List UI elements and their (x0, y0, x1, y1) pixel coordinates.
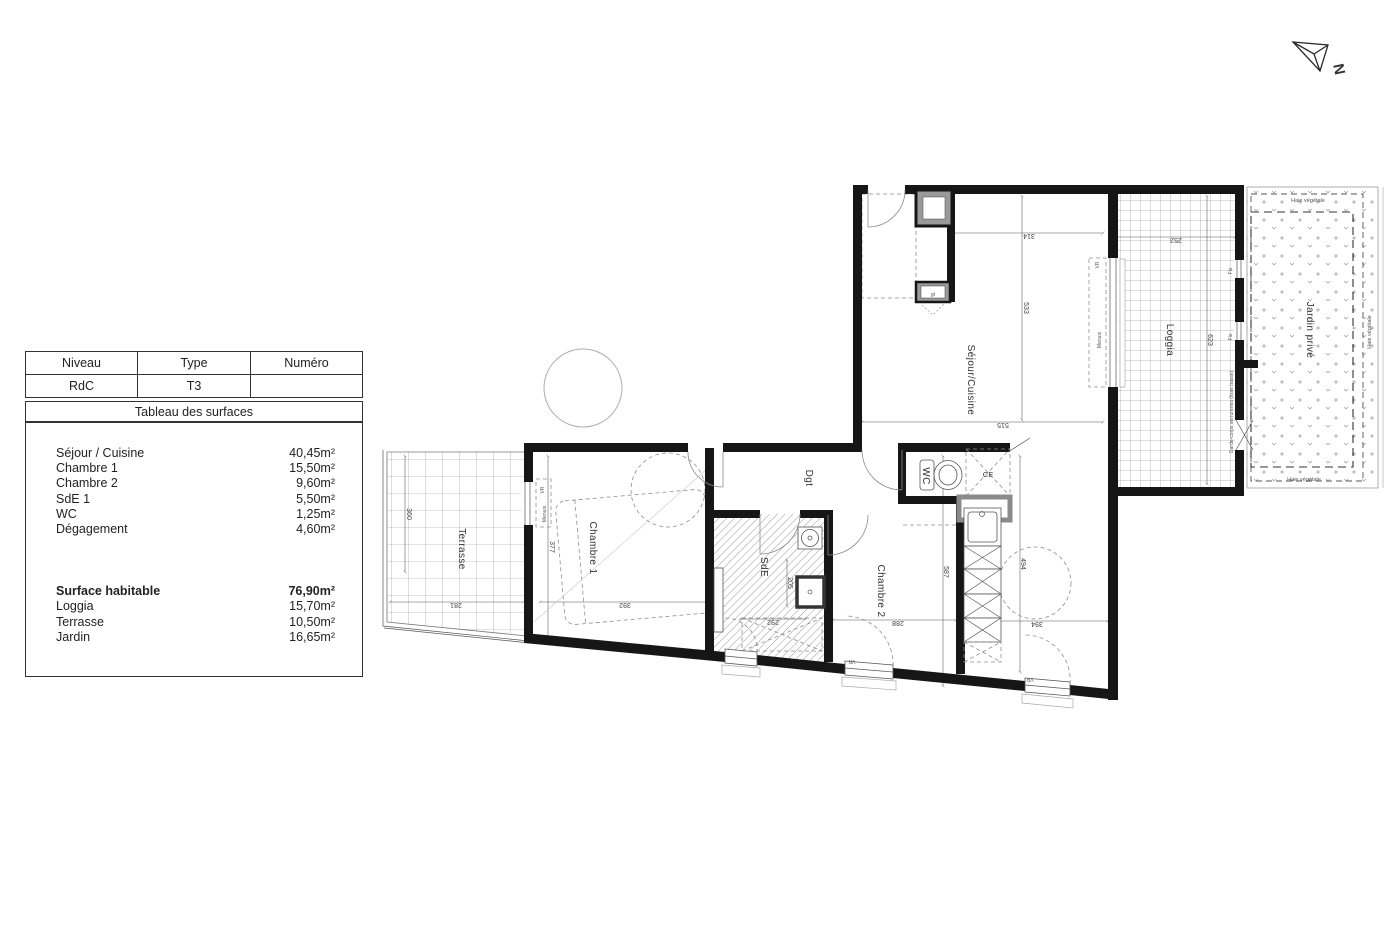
label-ce: CE (983, 470, 993, 479)
dim-292: 292 (767, 618, 779, 625)
vr-label: VR (848, 658, 855, 664)
gt-label: gt (931, 292, 936, 298)
floor-plan: N Séjour/Cuisine Loggia Jardin privé Ter… (0, 0, 1400, 950)
label-loggia: Loggia (1164, 324, 1175, 356)
label-terrasse: Terrasse (456, 528, 467, 570)
fix-label: Fix (1228, 333, 1234, 340)
window-fix-loggia-1 (1234, 260, 1245, 278)
label-chambre1: Chambre 1 (587, 521, 598, 574)
dining-table (999, 547, 1071, 619)
vr-label: VR (540, 486, 546, 493)
vr-label: VR (1095, 261, 1101, 268)
window-fix-loggia-2 (1234, 322, 1245, 340)
tree-symbol (544, 349, 622, 427)
entry-closet (862, 194, 916, 298)
dim-377: 377 (548, 541, 555, 553)
door-wc (862, 450, 902, 490)
label-jardin: Jardin privé (1304, 302, 1315, 359)
dim-515: 515 (997, 421, 1009, 428)
shower-unit (797, 577, 824, 607)
north-label: N (1329, 62, 1348, 76)
haie-label-bottom: Haie végétale (1287, 477, 1321, 483)
dim-288: 288 (892, 619, 904, 626)
bottom-wall (524, 633, 725, 662)
label-dgt: Dgt (803, 470, 814, 487)
duct-arrow (922, 303, 945, 315)
menuis-label: Menuis (542, 505, 548, 522)
door-chambre2 (828, 515, 868, 555)
label-chambre2: Chambre 2 (875, 564, 886, 617)
label-wc: WC (920, 467, 931, 484)
menuis-label: Menuis (1097, 331, 1103, 348)
dim-205: 205 (786, 577, 793, 589)
fix-label: Fix (1228, 267, 1234, 274)
french-door-chambre2 (842, 661, 896, 690)
dim-587: 587 (942, 566, 949, 578)
dim-623: 623 (1206, 334, 1213, 346)
dim-314: 314 (1023, 232, 1035, 239)
dim-281: 281 (450, 601, 462, 608)
dim-394: 394 (1031, 620, 1043, 627)
label-sde: SdE (758, 557, 769, 577)
kitchen-counter (964, 508, 1001, 662)
dim-533: 533 (1022, 302, 1029, 314)
north-arrow: N (1293, 42, 1348, 76)
garde-corps-label: Garde-corps serrureries (lisse basse) (1229, 370, 1235, 453)
dim-252: 252 (1170, 236, 1182, 243)
haie-label-right: Haie végétale (1367, 315, 1373, 349)
vr-label: VR (1026, 676, 1033, 682)
label-sejour: Séjour/Cuisine (965, 345, 976, 416)
bed-chambre1 (555, 489, 715, 626)
haie-label-top: Haie végétale (1291, 198, 1325, 204)
slope-line (534, 468, 708, 622)
entry-door (868, 190, 905, 227)
dim-494: 494 (1019, 558, 1026, 570)
floor-plan-sheet: Niveau Type Numéro RdC T3 Tableau des su… (0, 0, 1400, 950)
dim-392: 392 (619, 601, 631, 608)
dim-360: 360 (405, 508, 412, 520)
french-door-sde (722, 649, 760, 677)
